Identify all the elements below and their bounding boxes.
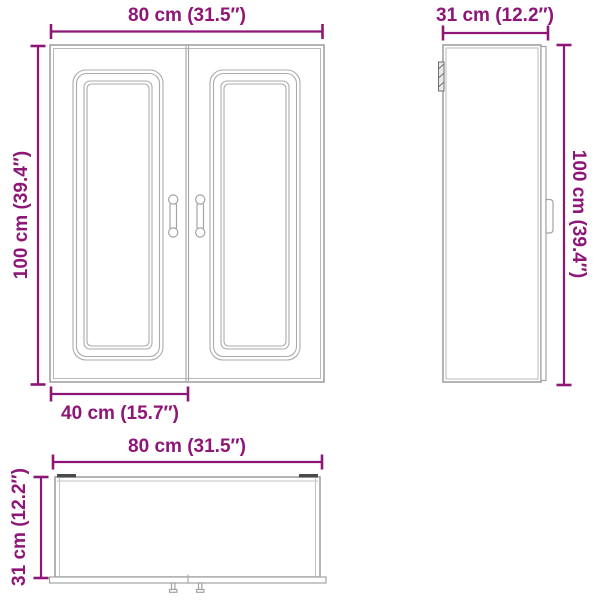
side-door-edge xyxy=(541,47,546,381)
right-handle-bottom-knob xyxy=(196,228,205,237)
bottom-right-handle-mark xyxy=(197,583,204,592)
dim-door-width: 40 cm (15.7″) xyxy=(51,387,188,425)
side-handle-profile xyxy=(546,200,553,234)
bottom-width-label: 80 cm (31.5″) xyxy=(128,436,246,457)
left-handle-bar xyxy=(170,202,177,231)
front-width-label: 80 cm (31.5″) xyxy=(128,5,246,26)
bottom-left-handle-mark xyxy=(170,583,177,592)
side-cabinet-body xyxy=(443,45,541,382)
bottom-depth-label: 31 cm (12.2″) xyxy=(9,468,30,586)
bottom-right-handle-stem xyxy=(199,583,202,590)
door-width-label: 40 cm (15.7″) xyxy=(61,403,179,424)
side-view xyxy=(439,45,554,382)
left-handle-bottom-knob xyxy=(169,228,178,237)
right-handle-bar xyxy=(197,202,204,231)
dim-bottom-depth: 31 cm (12.2″) xyxy=(9,468,49,586)
right-handle-top-knob xyxy=(196,195,205,204)
side-depth-label: 31 cm (12.2″) xyxy=(436,5,554,26)
right-door-handle xyxy=(196,195,205,237)
bottom-view xyxy=(50,474,327,592)
bottom-left-handle-foot xyxy=(170,590,177,593)
dim-front-width: 80 cm (31.5″) xyxy=(51,5,323,39)
wall-bracket-side xyxy=(439,62,445,91)
dim-front-height: 100 cm (39.4″) xyxy=(11,46,46,385)
front-view xyxy=(50,45,324,382)
front-cabinet-body xyxy=(50,45,324,382)
wall-bracket-right-mark xyxy=(299,474,318,477)
left-handle-top-knob xyxy=(169,195,178,204)
left-door-handle xyxy=(169,195,178,237)
bottom-cabinet-body xyxy=(55,477,320,577)
dim-side-depth: 31 cm (12.2″) xyxy=(436,5,554,41)
side-height-label: 100 cm (39.4″) xyxy=(568,150,589,278)
dim-side-height: 100 cm (39.4″) xyxy=(557,45,590,385)
bottom-right-handle-foot xyxy=(197,590,204,593)
front-height-label: 100 cm (39.4″) xyxy=(11,151,32,279)
dim-bottom-width: 80 cm (31.5″) xyxy=(53,436,322,470)
cabinet-dimension-diagram: 80 cm (31.5″) 100 cm (39.4″) 40 cm (15.7… xyxy=(0,0,600,600)
wall-bracket-left-mark xyxy=(57,474,76,477)
bottom-left-handle-stem xyxy=(172,583,175,590)
